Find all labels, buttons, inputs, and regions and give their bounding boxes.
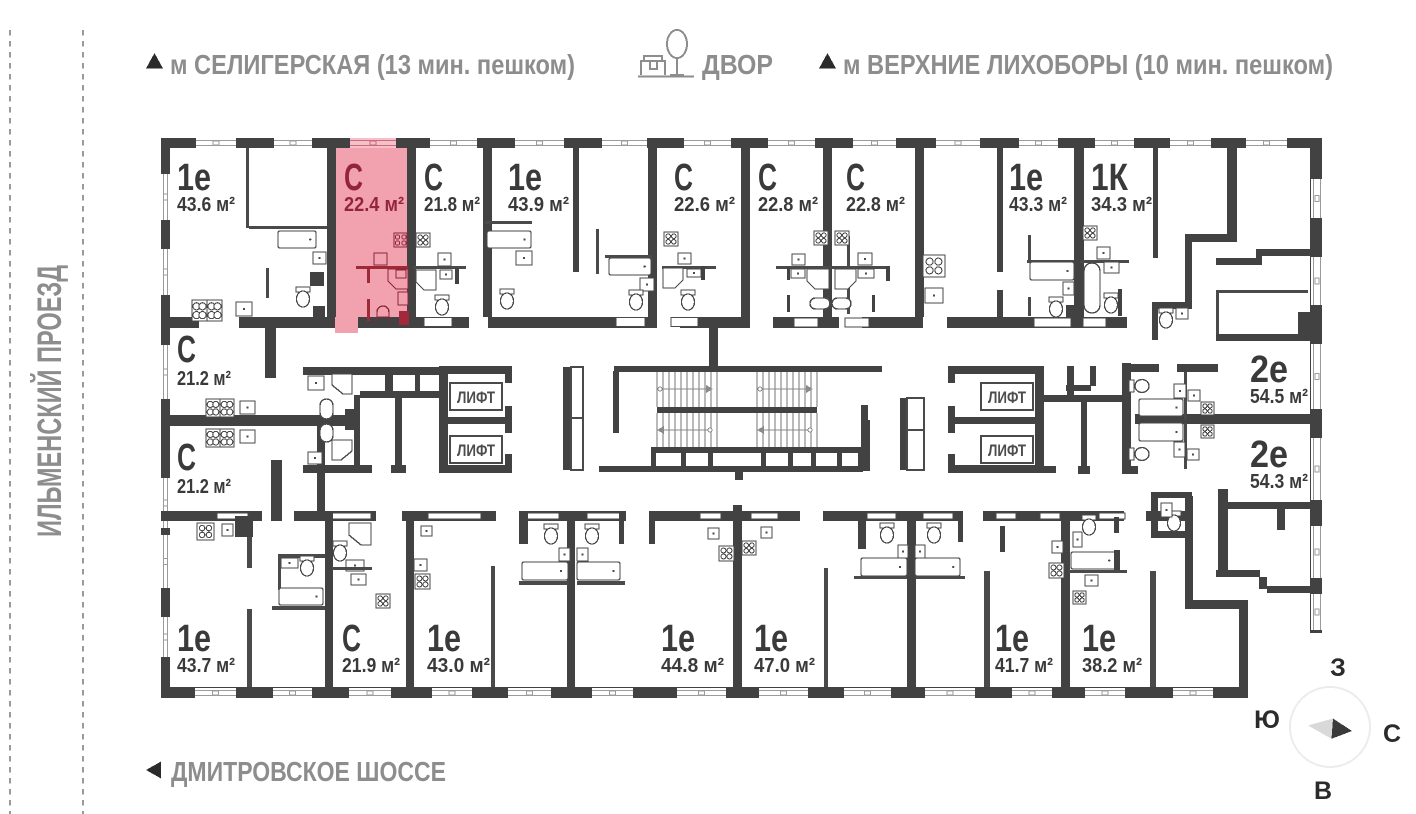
svg-text:38.2 м²: 38.2 м²: [1082, 655, 1142, 677]
svg-text:С: С: [846, 157, 865, 199]
svg-text:21.9 м²: 21.9 м²: [342, 655, 400, 677]
svg-text:43.0 м²: 43.0 м²: [427, 655, 490, 677]
svg-text:С: С: [177, 437, 196, 479]
svg-text:43.7 м²: 43.7 м²: [177, 655, 235, 677]
svg-text:С: С: [342, 618, 361, 660]
svg-text:22.8 м²: 22.8 м²: [846, 194, 905, 216]
svg-text:ЛИФТ: ЛИФТ: [988, 388, 1026, 407]
svg-text:22.4 м²: 22.4 м²: [344, 194, 404, 216]
svg-text:ДВОР: ДВОР: [702, 49, 773, 80]
svg-text:54.5 м²: 54.5 м²: [1250, 386, 1308, 408]
svg-text:22.6 м²: 22.6 м²: [674, 194, 735, 216]
svg-text:47.0 м²: 47.0 м²: [754, 655, 815, 677]
svg-text:м СЕЛИГЕРСКАЯ (13 мин. пешком): м СЕЛИГЕРСКАЯ (13 мин. пешком): [170, 49, 575, 80]
svg-text:З: З: [1330, 654, 1346, 682]
svg-text:ИЛЬМЕНСКИЙ ПРОЕЗД: ИЛЬМЕНСКИЙ ПРОЕЗД: [30, 265, 69, 537]
svg-text:43.3 м²: 43.3 м²: [1009, 194, 1067, 216]
svg-text:2е: 2е: [1250, 434, 1288, 476]
svg-text:21.8 м²: 21.8 м²: [424, 194, 480, 216]
svg-text:С: С: [424, 157, 443, 199]
svg-text:1е: 1е: [754, 618, 788, 660]
svg-text:21.2 м²: 21.2 м²: [177, 368, 231, 390]
svg-text:43.9 м²: 43.9 м²: [508, 194, 569, 216]
svg-text:1е: 1е: [177, 157, 211, 199]
svg-text:ЛИФТ: ЛИФТ: [457, 388, 495, 407]
svg-text:44.8 м²: 44.8 м²: [661, 655, 724, 677]
svg-text:1е: 1е: [1009, 157, 1043, 199]
svg-text:С: С: [344, 157, 363, 199]
svg-text:1е: 1е: [661, 618, 695, 660]
svg-text:В: В: [1314, 777, 1332, 805]
svg-text:ДМИТРОВСКОЕ ШОССЕ: ДМИТРОВСКОЕ ШОССЕ: [171, 756, 446, 787]
svg-text:22.8 м²: 22.8 м²: [758, 194, 818, 216]
svg-text:2е: 2е: [1250, 349, 1288, 391]
svg-text:43.6 м²: 43.6 м²: [177, 194, 235, 216]
svg-text:1К: 1К: [1091, 157, 1129, 199]
svg-text:1е: 1е: [995, 618, 1029, 660]
svg-text:Ю: Ю: [1254, 706, 1280, 734]
svg-text:41.7 м²: 41.7 м²: [995, 655, 1053, 677]
svg-text:54.3 м²: 54.3 м²: [1250, 471, 1308, 493]
svg-text:34.3 м²: 34.3 м²: [1091, 194, 1152, 216]
svg-text:ЛИФТ: ЛИФТ: [988, 441, 1026, 460]
svg-text:1е: 1е: [177, 618, 211, 660]
svg-text:С: С: [758, 157, 777, 199]
svg-text:м ВЕРХНИЕ ЛИХОБОРЫ (10 мин. пе: м ВЕРХНИЕ ЛИХОБОРЫ (10 мин. пешком): [843, 49, 1333, 80]
svg-text:С: С: [177, 329, 196, 371]
svg-text:1е: 1е: [508, 157, 542, 199]
svg-text:С: С: [1383, 720, 1401, 748]
svg-text:ЛИФТ: ЛИФТ: [457, 441, 495, 460]
svg-text:1е: 1е: [427, 618, 461, 660]
svg-text:С: С: [674, 157, 693, 199]
svg-text:1е: 1е: [1082, 618, 1116, 660]
svg-text:21.2 м²: 21.2 м²: [177, 476, 231, 498]
